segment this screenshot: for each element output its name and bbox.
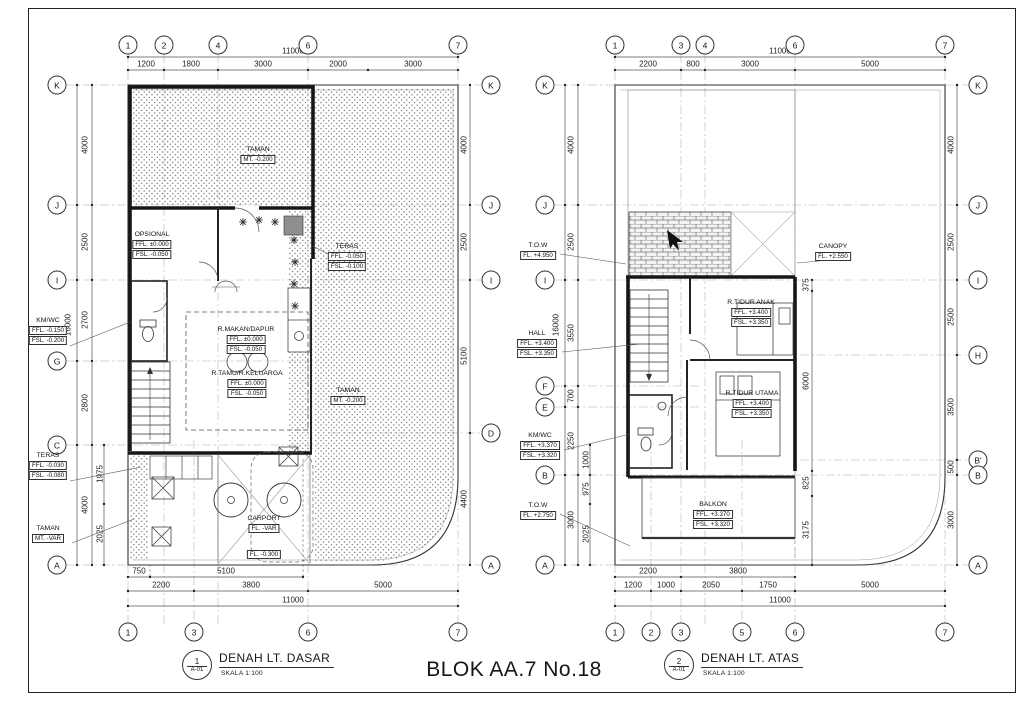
- grid-bubble: 7: [936, 36, 955, 55]
- grid-bubble: A: [536, 556, 555, 575]
- toilet-plan1: [140, 320, 156, 342]
- grid-bubble: 1: [606, 623, 625, 642]
- dim-label: 4000: [460, 136, 469, 154]
- carport-plan1: [214, 452, 313, 564]
- grid-bubble: A: [48, 556, 67, 575]
- dim-label: 2500: [567, 233, 576, 251]
- grid-bubble: B: [536, 466, 555, 485]
- grid-bubble: K: [482, 76, 501, 95]
- dim-label: 2800: [81, 394, 90, 412]
- room-label-taman-left: TAMANMT. -VAR: [32, 525, 64, 543]
- car-outline: [251, 452, 313, 562]
- grid-bubble: 2: [642, 623, 661, 642]
- plan1-title-block: 1 A-01 DENAH LT. DASAR SKALA 1:100: [182, 650, 334, 680]
- grid-bubble: 4: [696, 36, 715, 55]
- room-label-canopy: CANOPYFL. +2.550: [815, 243, 851, 261]
- dim-label: 2700: [81, 311, 90, 329]
- door-arcs-plan2: [659, 340, 710, 445]
- dim-label: 1750: [759, 581, 777, 590]
- grid-bubble: J: [48, 196, 67, 215]
- dim-label: 2050: [702, 581, 720, 590]
- dim-label: 375: [802, 278, 811, 291]
- grid-bubble: H: [969, 346, 988, 365]
- plan1-detail-bubble: 1 A-01: [182, 650, 212, 680]
- dim-label: 2025: [582, 525, 591, 543]
- room-label-tow-bottom: T.O.WFL. +2.750: [520, 502, 556, 520]
- plan2-detail-bubble: 2 A-01: [664, 650, 694, 680]
- grid-bubble: J: [969, 196, 988, 215]
- room-label-balkon: BALKONFFL. +3.370FSL. +3.320: [693, 501, 733, 529]
- grid-bubble: 3: [672, 623, 691, 642]
- dining-table-plan1: [227, 352, 268, 372]
- grid-bubble: J: [482, 196, 501, 215]
- grid-bubble: 3: [185, 623, 204, 642]
- dim-label: 5000: [861, 60, 879, 69]
- site-boundary-plan2: [615, 85, 945, 565]
- grid-bubble: 6: [786, 623, 805, 642]
- room-label-taman-right: TAMANMT. -0.200: [330, 387, 365, 405]
- grid-bubble: 7: [449, 36, 468, 55]
- dim-label: 2200: [639, 567, 657, 576]
- room-label-rmakan: R.MAKAN/DAPURFFL. ±0.000FSL. -0.050: [218, 326, 275, 354]
- grid-bubble: K: [969, 76, 988, 95]
- grid-bubble: D: [482, 424, 501, 443]
- grid-bubble: 2: [155, 36, 174, 55]
- plan-number: 1: [187, 657, 207, 667]
- dim-label: 2200: [639, 60, 657, 69]
- dim-label: 5100: [217, 567, 235, 576]
- grid-bubble: I: [48, 271, 67, 290]
- dim-label: 1800: [182, 60, 200, 69]
- plan-linework: [0, 0, 1024, 724]
- grid-bubble: 1: [606, 36, 625, 55]
- dim-label: 11000: [769, 596, 791, 605]
- sheet-ref: A-01: [191, 667, 204, 673]
- dim-label: 4000: [81, 496, 90, 514]
- room-label-rtidur-anak: R.TIDUR ANAKFFL. +3.400FSL. +3.350: [727, 299, 775, 327]
- grid-bubble: J: [536, 196, 555, 215]
- dim-label: 3800: [729, 567, 747, 576]
- room-label-teras-right: TERASFFL. -0.050FSL. -0.100: [328, 243, 366, 271]
- plan-number: 2: [669, 657, 689, 667]
- dim-label: 1200: [624, 581, 642, 590]
- toilet-plan2: [638, 402, 666, 451]
- grid-bubble: 3: [672, 36, 691, 55]
- grid-bubble: 4: [209, 36, 228, 55]
- dim-label: 2250: [567, 432, 576, 450]
- roof-tile-hatch-plan2: [629, 212, 795, 276]
- dim-label: 2500: [460, 233, 469, 251]
- dim-label: 2200: [152, 581, 170, 590]
- dim-label: 5000: [861, 581, 879, 590]
- kitchen-counter-plan1: [288, 288, 310, 352]
- dim-label: 6000: [802, 372, 811, 390]
- dim-label: 1000: [582, 451, 591, 469]
- grid-bubble: 7: [449, 623, 468, 642]
- grid-bubble: 5: [733, 623, 752, 642]
- grid-bubble: I: [482, 271, 501, 290]
- grid-bubble: 6: [299, 36, 318, 55]
- grid-bubble: K: [536, 76, 555, 95]
- room-label-teras-left: TERASFFL. -0.030FSL. -0.080: [29, 452, 67, 480]
- room-label-rtidur-utama: R.TIDUR UTAMAFFL. +3.400FSL. +3.350: [726, 390, 779, 418]
- sheet-ref: A-01: [673, 667, 686, 673]
- drawing-sheet: 1 2 4 6 7 1 3 6 7 K J I G C A K J I D A …: [0, 0, 1024, 724]
- grid-bubble: 7: [936, 623, 955, 642]
- dim-label: 3000: [254, 60, 272, 69]
- grid-bubble: I: [969, 271, 988, 290]
- dim-label: 3000: [404, 60, 422, 69]
- dim-label: 2500: [81, 233, 90, 251]
- room-label-opsional: OPSIONALFFL. ±0.000FSL. -0.050: [132, 231, 171, 259]
- grid-bubble: I: [536, 271, 555, 290]
- grid-bubble: 6: [299, 623, 318, 642]
- grid-bubble: E: [536, 398, 555, 417]
- sheet-title: BLOK AA.7 No.18: [426, 658, 602, 682]
- dim-label: 2500: [947, 233, 956, 251]
- dim-label: 3000: [741, 60, 759, 69]
- plan2-scale-text: SKALA 1:100: [703, 670, 803, 677]
- grid-bubble: A: [969, 556, 988, 575]
- dim-label: 975: [582, 482, 591, 495]
- dim-label: 5000: [374, 581, 392, 590]
- dim-label: 4400: [460, 490, 469, 508]
- dim-label: 4000: [567, 136, 576, 154]
- dim-label: 3500: [947, 398, 956, 416]
- dim-label: 5100: [460, 347, 469, 365]
- grid-bubble: B: [969, 466, 988, 485]
- plan2-title-block: 2 A-01 DENAH LT. ATAS SKALA 1:100: [664, 650, 803, 680]
- stairs-plan2: [630, 290, 668, 382]
- dim-label: 1000: [657, 581, 675, 590]
- room-label-carport-level: FL. -0.300: [247, 549, 281, 559]
- dim-label: 2500: [947, 308, 956, 326]
- dim-label: 3175: [802, 521, 811, 539]
- plan1-scale-text: SKALA 1:100: [221, 670, 334, 677]
- dim-label: 11000: [282, 596, 304, 605]
- grid-bubble: 6: [786, 36, 805, 55]
- room-label-tow-top: T.O.WFL. +4.950: [520, 242, 556, 260]
- plan2-title-text: DENAH LT. ATAS: [701, 651, 803, 668]
- dim-label: 3800: [242, 581, 260, 590]
- grid-bubble: G: [48, 352, 67, 371]
- teras-bench-plan1: [150, 456, 212, 479]
- dim-label: 2000: [329, 60, 347, 69]
- dim-label: 2025: [96, 525, 105, 543]
- room-label-taman-top: TAMANMT. -0.200: [240, 146, 275, 164]
- dim-label: 3000: [567, 511, 576, 529]
- grid-bubble: 1: [119, 623, 138, 642]
- dim-label: 800: [686, 60, 699, 69]
- room-label-kmwc: KM/WCFFL. -0.150FSL. -0.200: [29, 317, 67, 345]
- grid-bubble: A: [482, 556, 501, 575]
- plan1-title-text: DENAH LT. DASAR: [219, 651, 334, 668]
- grid-bubble: F: [536, 377, 555, 396]
- dim-label: 750: [132, 567, 145, 576]
- room-label-kmwc-upper: KM/WCFFL. +3.370FSL. +3.320: [520, 432, 560, 460]
- dim-label: 3000: [947, 511, 956, 529]
- dim-label: 3550: [567, 324, 576, 342]
- room-label-rtamu: R.TAMU/R.KELUARGAFFL. ±0.000FSL. -0.050: [211, 370, 282, 398]
- dim-label: 1975: [96, 465, 105, 483]
- dim-label: 825: [802, 476, 811, 489]
- dim-label: 1200: [137, 60, 155, 69]
- room-label-carport: CARPORTFL. -VAR: [247, 515, 280, 533]
- dim-label: 4000: [947, 136, 956, 154]
- grid-bubble: K: [48, 76, 67, 95]
- dim-label: 4000: [81, 136, 90, 154]
- dim-label: 700: [567, 389, 576, 402]
- dim-label: 500: [947, 460, 956, 473]
- planter-box-gray: [284, 216, 303, 235]
- room-label-hall: HALLFFL. +3.400FSL. +3.350: [517, 330, 557, 358]
- grid-bubble: 1: [119, 36, 138, 55]
